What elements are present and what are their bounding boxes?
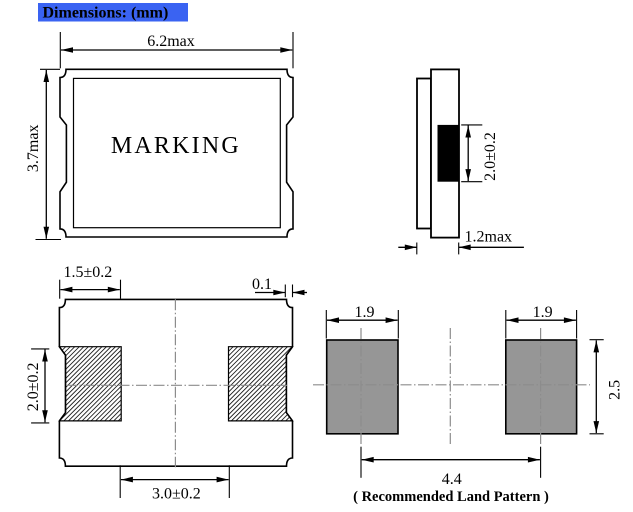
svg-text:1.9: 1.9 (355, 304, 375, 321)
svg-text:1.5±0.2: 1.5±0.2 (64, 264, 113, 281)
svg-text:2.0±0.2: 2.0±0.2 (25, 363, 42, 412)
svg-text:Dimensions: (mm): Dimensions: (mm) (43, 5, 169, 22)
svg-text:2.0±0.2: 2.0±0.2 (482, 132, 499, 181)
svg-text:MARKING: MARKING (111, 133, 241, 159)
svg-text:2.5: 2.5 (607, 380, 624, 400)
svg-text:6.2max: 6.2max (147, 33, 195, 50)
svg-text:1.9: 1.9 (533, 304, 553, 321)
svg-text:4.4: 4.4 (442, 471, 462, 488)
svg-text:3.0±0.2: 3.0±0.2 (152, 486, 201, 503)
svg-text:1.2max: 1.2max (465, 229, 513, 246)
svg-text:3.7max: 3.7max (25, 125, 42, 173)
svg-text:( Recommended Land Pattern ): ( Recommended Land Pattern ) (353, 489, 549, 505)
svg-text:0.1: 0.1 (252, 276, 272, 293)
